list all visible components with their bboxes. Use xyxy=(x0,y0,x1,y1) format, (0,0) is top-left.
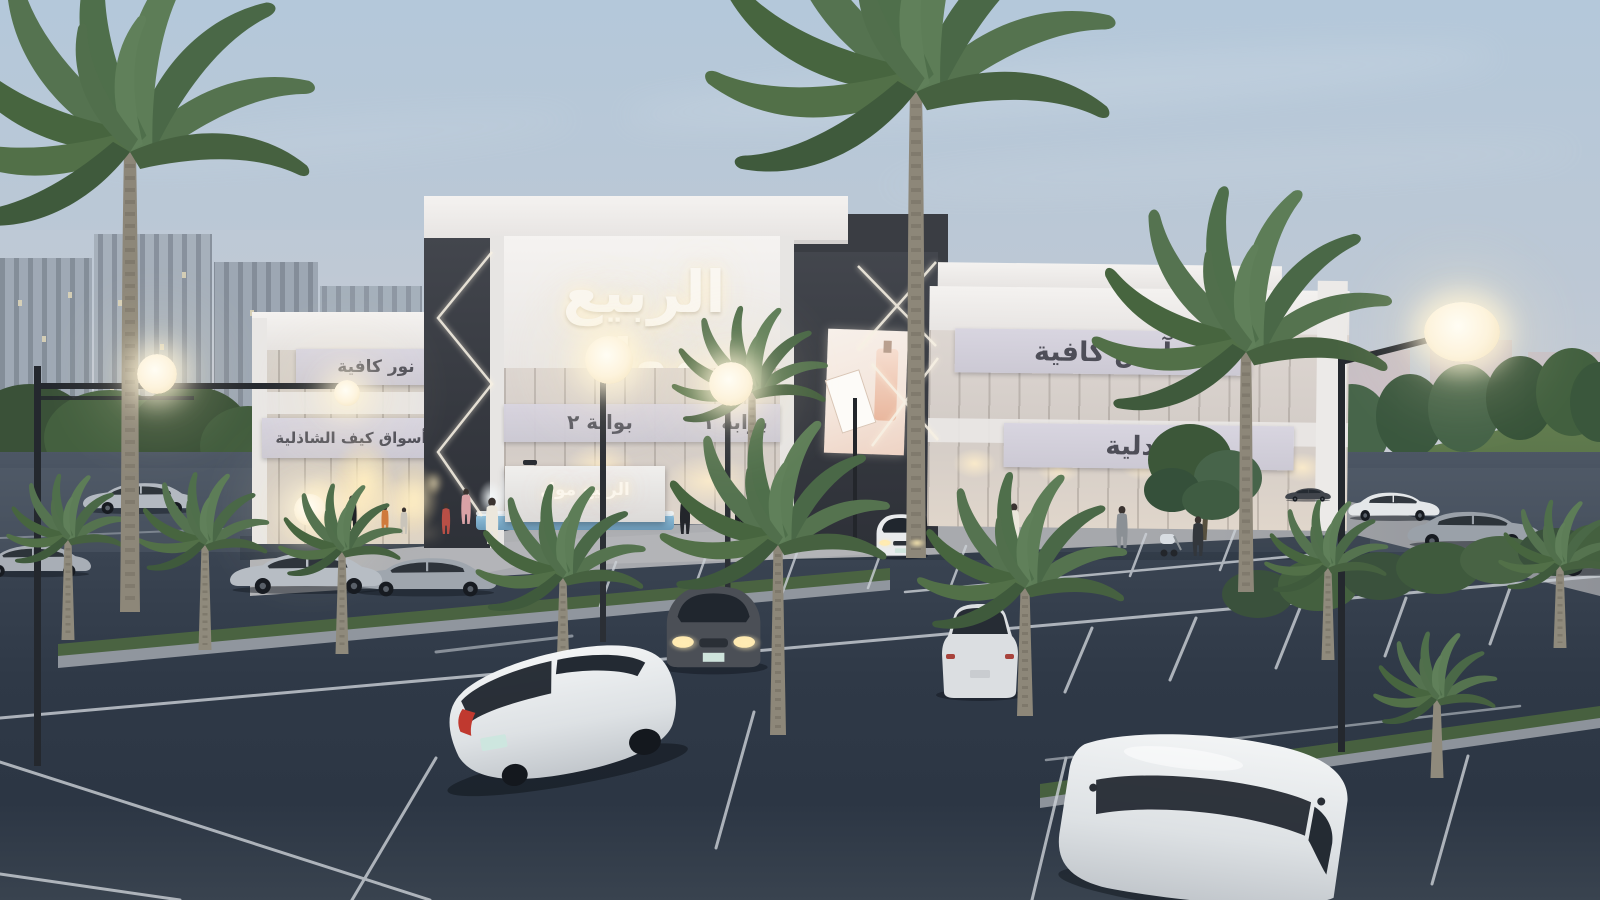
headlight-glow xyxy=(668,634,700,652)
headlight-glow xyxy=(908,538,926,548)
person xyxy=(461,489,470,524)
palm-small-bottom-right xyxy=(1372,630,1500,778)
street-lamp-globe xyxy=(1424,302,1500,362)
person xyxy=(1116,506,1127,548)
street-lamp-globe xyxy=(334,380,360,406)
street-lamp-globe xyxy=(585,336,633,384)
person xyxy=(1193,516,1204,556)
car-dark-headlights xyxy=(660,586,768,674)
person xyxy=(442,503,450,534)
car-minivan xyxy=(1348,493,1439,521)
scene-root: نور كافية أسواق كيف الشاذلية الربيع مول xyxy=(0,0,1600,900)
car-small-dark xyxy=(1285,488,1331,501)
props xyxy=(0,0,1600,900)
facade-light-lines xyxy=(438,252,938,516)
street-lamp-globe xyxy=(709,362,753,406)
street-lamp-globe xyxy=(137,354,177,394)
car-hatchback-foreground xyxy=(427,632,691,806)
car-white-bottom-right xyxy=(1052,719,1355,900)
headlight-glow xyxy=(876,538,894,548)
headlight-glow xyxy=(730,634,762,652)
banner-pole xyxy=(853,398,857,546)
stroller xyxy=(1160,534,1181,557)
